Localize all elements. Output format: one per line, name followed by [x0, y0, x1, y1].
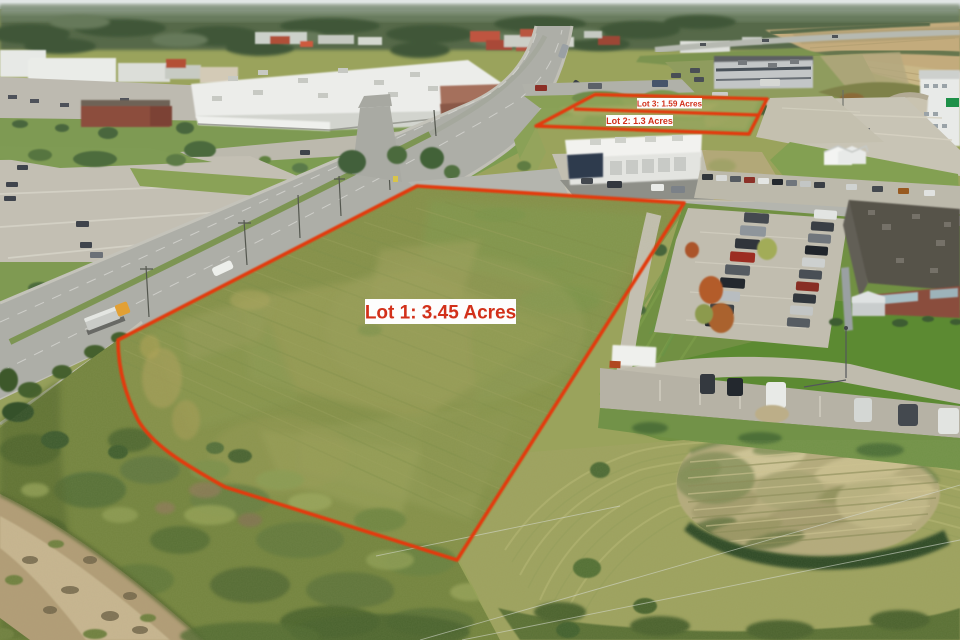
svg-text:Lot 2: 1.3 Acres: Lot 2: 1.3 Acres: [606, 116, 673, 126]
svg-text:Lot 1: 3.45 Acres: Lot 1: 3.45 Acres: [365, 303, 516, 324]
svg-text:Lot 3: 1.59 Acres: Lot 3: 1.59 Acres: [637, 100, 703, 109]
